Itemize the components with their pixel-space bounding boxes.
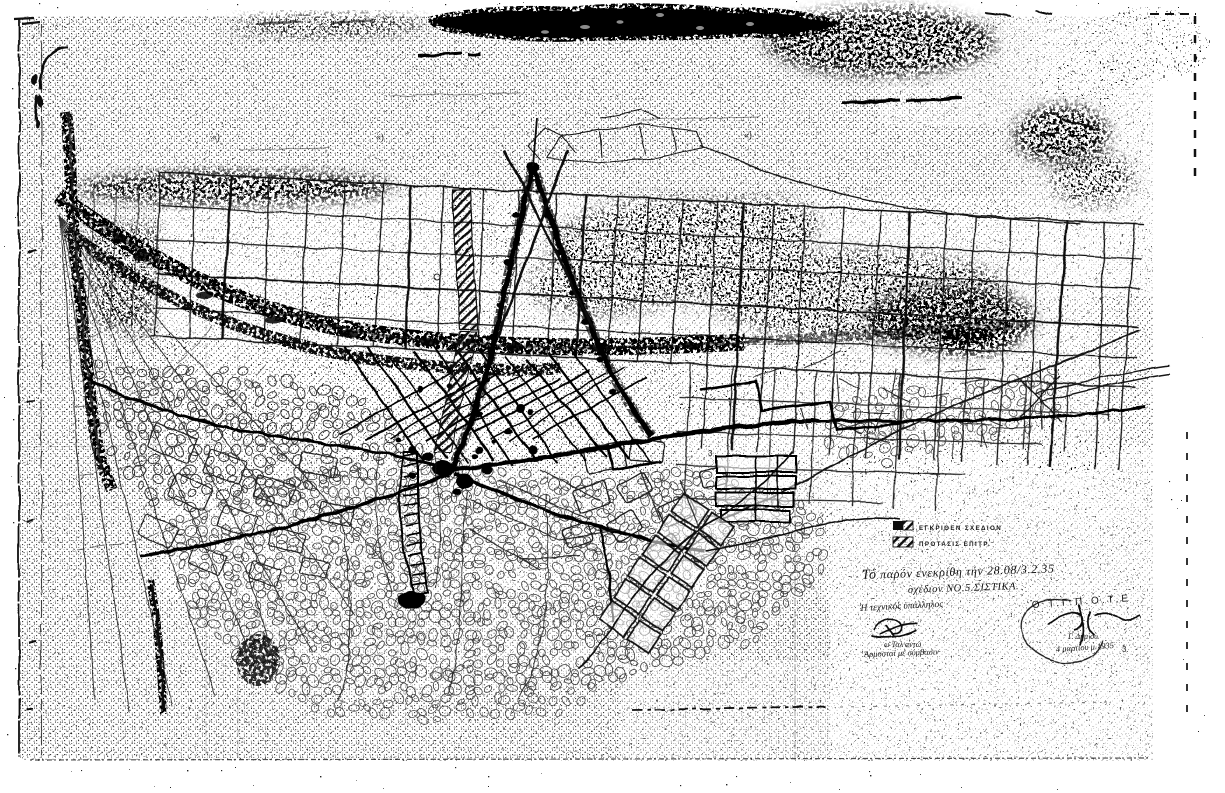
svg-text:Γ. Δήμ·ου: Γ. Δήμ·ου [1067,632,1098,641]
svg-text:ΕΓΚΡΙΘΕΝ ΣΧΕΔΙΟΝ: ΕΓΚΡΙΘΕΝ ΣΧΕΔΙΟΝ [919,525,1002,532]
svg-text:3: 3 [708,449,713,458]
svg-text:«): «) [376,132,384,142]
svg-text:3.: 3. [1122,645,1129,654]
svg-text:«): «) [744,130,752,140]
svg-text:ΠΡΟΤΑΣΙΣ ΕΠΙΤΡ.: ΠΡΟΤΑΣΙΣ ΕΠΙΤΡ. [919,541,991,548]
svg-text:«): «) [212,132,220,142]
